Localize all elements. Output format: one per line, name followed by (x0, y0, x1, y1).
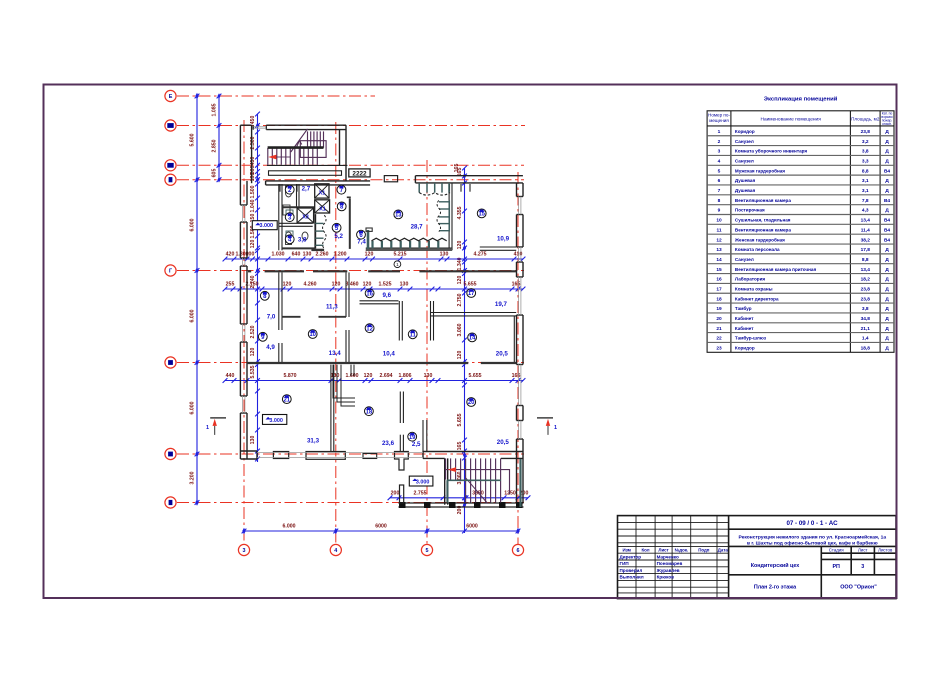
svg-text:Лист: Лист (658, 547, 669, 552)
svg-text:Д: Д (885, 306, 889, 312)
svg-text:10: 10 (309, 332, 316, 338)
svg-text:14: 14 (469, 336, 476, 342)
svg-text:Д: Д (885, 316, 889, 322)
svg-text:в г. Шахты под офисно-бытовой: в г. Шахты под офисно-бытовой цех, кафе … (747, 540, 878, 547)
svg-text:опасн.: опасн. (882, 122, 892, 126)
svg-text:120: 120 (364, 373, 373, 379)
svg-text:130: 130 (440, 252, 449, 258)
svg-text:3: 3 (718, 149, 721, 155)
svg-text:18: 18 (716, 296, 722, 302)
svg-text:165: 165 (454, 164, 460, 173)
svg-text:1.525: 1.525 (379, 282, 392, 288)
svg-text:23: 23 (716, 346, 722, 352)
svg-text:34,8: 34,8 (861, 316, 871, 322)
svg-text:Кол: Кол (641, 547, 649, 552)
svg-text:Д: Д (885, 129, 889, 135)
svg-text:20: 20 (468, 400, 475, 406)
svg-text:21: 21 (283, 397, 290, 403)
svg-text:Лаборатория: Лаборатория (735, 276, 766, 282)
svg-text:38,2: 38,2 (861, 237, 871, 243)
svg-text:1.200: 1.200 (334, 252, 347, 258)
svg-text:2.755: 2.755 (414, 491, 427, 497)
svg-text:1.040: 1.040 (250, 199, 256, 212)
svg-text:130: 130 (424, 373, 433, 379)
svg-text:Д: Д (885, 159, 889, 165)
svg-text:Д: Д (885, 267, 889, 273)
svg-text:200: 200 (391, 491, 400, 497)
svg-text:5.215: 5.215 (394, 252, 407, 258)
svg-text:Д: Д (885, 178, 889, 184)
svg-text:Д: Д (885, 326, 889, 332)
svg-text:120: 120 (363, 282, 372, 288)
svg-text:5.535: 5.535 (250, 365, 256, 378)
svg-text:17: 17 (716, 286, 722, 292)
svg-text:В4: В4 (884, 168, 890, 174)
svg-text:20: 20 (716, 316, 722, 322)
svg-text:1.030: 1.030 (272, 252, 285, 258)
svg-text:3.200: 3.200 (190, 471, 196, 484)
svg-text:2,7: 2,7 (302, 186, 311, 193)
svg-text:4.275: 4.275 (474, 252, 487, 258)
svg-text:№док.: №док. (675, 547, 689, 552)
svg-text:Дата: Дата (718, 547, 729, 552)
svg-text:10,9: 10,9 (497, 236, 510, 243)
svg-text:6.000: 6.000 (283, 524, 296, 530)
svg-text:В4: В4 (884, 218, 890, 224)
svg-text:Душевая: Душевая (735, 188, 756, 193)
svg-text:2.750: 2.750 (457, 293, 463, 306)
svg-text:120: 120 (457, 241, 463, 250)
svg-text:5: 5 (426, 548, 429, 554)
svg-text:23,8: 23,8 (861, 129, 871, 135)
svg-text:1: 1 (554, 425, 557, 431)
svg-text:120: 120 (457, 351, 463, 360)
svg-text:3,2: 3,2 (862, 139, 869, 145)
svg-text:07 - 09 / 0 - 1 - АС: 07 - 09 / 0 - 1 - АС (786, 520, 838, 527)
svg-text:Д: Д (885, 346, 889, 352)
svg-text:130: 130 (400, 282, 409, 288)
svg-text:Мужская гардеробная: Мужская гардеробная (735, 167, 785, 173)
svg-text:Г: Г (169, 269, 172, 275)
svg-text:Стадия: Стадия (829, 548, 845, 553)
svg-text:3.460: 3.460 (346, 282, 359, 288)
svg-text:Санузел: Санузел (735, 257, 754, 262)
svg-text:Д: Д (885, 208, 889, 214)
svg-text:2.260: 2.260 (316, 252, 329, 258)
svg-text:Выполнил: Выполнил (620, 575, 644, 580)
svg-text:12: 12 (716, 237, 722, 243)
svg-text:23,6: 23,6 (382, 440, 395, 447)
svg-text:3.060: 3.060 (457, 471, 463, 484)
svg-text:Е: Е (169, 94, 173, 100)
svg-text:Вентиляционная камера приточна: Вентиляционная камера приточная (735, 267, 817, 272)
svg-text:3: 3 (243, 548, 246, 554)
svg-text:Журавлев: Журавлев (656, 568, 680, 573)
svg-text:3,8: 3,8 (862, 149, 869, 155)
svg-text:Вентиляционная камера: Вентиляционная камера (735, 227, 791, 232)
svg-text:6.000: 6.000 (190, 218, 196, 231)
svg-text:6.000: 6.000 (190, 309, 196, 322)
svg-text:17,8: 17,8 (861, 247, 871, 253)
svg-text:13: 13 (395, 213, 402, 219)
svg-text:9,6: 9,6 (382, 292, 391, 299)
svg-text:1: 1 (396, 262, 399, 267)
svg-text:3.000: 3.000 (260, 223, 274, 229)
svg-text:2.520: 2.520 (250, 325, 256, 338)
svg-text:120: 120 (250, 240, 256, 249)
svg-text:7,0: 7,0 (267, 314, 276, 321)
svg-text:Коридор: Коридор (735, 129, 755, 134)
svg-text:Тамбур: Тамбур (735, 305, 752, 311)
svg-text:ГИП: ГИП (620, 561, 629, 566)
svg-text:Х1: Х1 (319, 207, 326, 213)
svg-text:Д: Д (885, 286, 889, 292)
svg-text:3,8: 3,8 (862, 306, 869, 312)
svg-text:6000: 6000 (375, 524, 387, 530)
svg-text:450: 450 (250, 116, 256, 125)
svg-text:РП: РП (832, 564, 840, 570)
svg-text:420: 420 (226, 252, 235, 258)
svg-text:13,4: 13,4 (861, 218, 871, 224)
svg-text:5,2: 5,2 (334, 233, 343, 240)
svg-text:8: 8 (718, 198, 721, 204)
svg-text:17: 17 (468, 291, 475, 297)
svg-text:21,1: 21,1 (861, 326, 871, 332)
svg-text:2222: 2222 (352, 170, 367, 177)
svg-text:165: 165 (512, 373, 521, 379)
svg-text:Листов: Листов (878, 548, 893, 553)
svg-text:Проверил: Проверил (620, 568, 643, 573)
svg-text:Д: Д (885, 149, 889, 155)
svg-text:10,4: 10,4 (383, 351, 396, 358)
svg-text:Душевая: Душевая (735, 178, 756, 183)
svg-text:Комната персонала: Комната персонала (735, 247, 780, 252)
svg-text:5.655: 5.655 (469, 373, 482, 379)
svg-text:4: 4 (334, 548, 337, 554)
svg-text:130: 130 (331, 373, 340, 379)
svg-text:4,3: 4,3 (862, 208, 869, 214)
svg-text:19: 19 (716, 306, 722, 312)
svg-text:3.060: 3.060 (457, 323, 463, 336)
svg-text:3650: 3650 (472, 491, 484, 497)
svg-text:28,7: 28,7 (411, 224, 424, 231)
svg-text:7,8: 7,8 (862, 198, 869, 204)
svg-text:165: 165 (512, 282, 521, 288)
svg-text:Директор: Директор (620, 554, 642, 559)
svg-text:4.260: 4.260 (304, 282, 317, 288)
svg-text:1.806: 1.806 (399, 373, 412, 379)
svg-text:16: 16 (366, 292, 373, 298)
svg-text:Экспликация помещений: Экспликация помещений (764, 96, 838, 103)
svg-text:Пономарев: Пономарев (657, 561, 683, 566)
svg-text:6: 6 (718, 178, 721, 184)
svg-text:3: 3 (861, 564, 864, 570)
svg-text:1.500: 1.500 (250, 185, 256, 198)
svg-text:Комната уборочного инвентаря: Комната уборочного инвентаря (735, 148, 807, 154)
svg-text:6: 6 (517, 548, 520, 554)
svg-text:450: 450 (250, 157, 256, 166)
svg-text:130: 130 (303, 252, 312, 258)
svg-text:Д: Д (885, 336, 889, 342)
svg-text:640: 640 (292, 252, 301, 258)
svg-text:Кабинет: Кабинет (735, 325, 754, 331)
svg-text:16: 16 (716, 277, 722, 283)
svg-text:13: 13 (716, 247, 722, 253)
svg-text:120: 120 (332, 282, 341, 288)
svg-text:2: 2 (718, 139, 721, 145)
svg-text:120: 120 (457, 276, 463, 285)
svg-text:Д: Д (885, 188, 889, 194)
svg-text:3.000: 3.000 (269, 418, 283, 424)
svg-text:Кабинет: Кабинет (735, 315, 754, 321)
svg-text:4: 4 (718, 159, 721, 165)
svg-text:Наименование помещения: Наименование помещения (760, 117, 821, 123)
svg-text:2.500: 2.500 (250, 136, 256, 149)
svg-text:Санузел: Санузел (735, 139, 754, 144)
svg-text:Х3: Х3 (302, 215, 309, 221)
svg-text:19,7: 19,7 (495, 301, 508, 308)
svg-text:7: 7 (718, 188, 721, 194)
svg-text:Номер по-: Номер по- (708, 113, 730, 118)
svg-text:1,4: 1,4 (862, 336, 869, 342)
svg-text:Х1: Х1 (319, 191, 326, 197)
svg-text:Подп: Подп (698, 547, 710, 552)
svg-text:5.655: 5.655 (457, 413, 463, 426)
svg-text:12: 12 (366, 326, 373, 332)
svg-text:18,8: 18,8 (861, 346, 871, 352)
svg-text:Марченко: Марченко (657, 554, 679, 559)
svg-text:165: 165 (457, 442, 463, 451)
svg-text:10: 10 (716, 218, 722, 224)
svg-text:120: 120 (365, 252, 374, 258)
svg-text:3,1: 3,1 (862, 188, 869, 194)
svg-text:6000: 6000 (466, 524, 478, 530)
svg-text:120: 120 (283, 282, 292, 288)
svg-text:11: 11 (410, 333, 417, 339)
svg-text:7,4: 7,4 (357, 239, 366, 246)
svg-text:8,8: 8,8 (862, 168, 869, 174)
svg-text:18: 18 (366, 409, 373, 415)
svg-text:5.870: 5.870 (284, 373, 297, 379)
svg-text:20,5: 20,5 (496, 351, 509, 358)
svg-text:440: 440 (226, 373, 235, 379)
svg-text:2,5: 2,5 (412, 441, 421, 448)
svg-text:11,3: 11,3 (326, 304, 338, 311)
svg-text:180: 180 (250, 173, 256, 182)
svg-text:Постирочная: Постирочная (735, 208, 765, 213)
svg-text:15: 15 (716, 267, 722, 273)
svg-text:4.355: 4.355 (457, 206, 463, 219)
svg-text:Коридор: Коридор (735, 346, 755, 351)
svg-text:ООО "Орион": ООО "Орион" (840, 585, 877, 591)
svg-text:Крюков: Крюков (657, 575, 675, 580)
svg-text:Д: Д (885, 139, 889, 145)
svg-text:Д: Д (885, 277, 889, 283)
svg-text:1.600: 1.600 (346, 373, 359, 379)
svg-text:В4: В4 (884, 227, 890, 233)
svg-text:Санузел: Санузел (735, 159, 754, 164)
svg-text:5.655: 5.655 (464, 282, 477, 288)
svg-text:Кабинет директора: Кабинет директора (735, 295, 779, 301)
svg-text:Д: Д (885, 257, 889, 263)
svg-text:13,4: 13,4 (861, 267, 871, 273)
svg-text:Изм: Изм (622, 547, 630, 552)
svg-text:1.085: 1.085 (212, 103, 218, 116)
svg-text:3,1: 3,1 (862, 178, 869, 184)
svg-text:14: 14 (716, 257, 722, 263)
svg-text:13,4: 13,4 (329, 350, 342, 357)
svg-text:20,5: 20,5 (497, 439, 510, 446)
svg-text:Тамбур-шлюз: Тамбур-шлюз (735, 335, 767, 341)
svg-text:23,8: 23,8 (861, 296, 871, 302)
svg-text:130: 130 (250, 436, 256, 445)
svg-text:6.000: 6.000 (190, 401, 196, 414)
svg-text:11,4: 11,4 (861, 227, 870, 233)
svg-text:21: 21 (716, 326, 722, 332)
svg-text:В4: В4 (884, 198, 890, 204)
svg-text:22: 22 (716, 336, 722, 342)
svg-text:План 2-го этажа: План 2-го этажа (754, 585, 797, 591)
svg-text:11: 11 (716, 227, 721, 233)
svg-text:Лист: Лист (858, 548, 868, 553)
svg-text:19: 19 (409, 435, 416, 441)
svg-text:4,9: 4,9 (266, 344, 275, 351)
svg-text:3.000: 3.000 (416, 479, 430, 485)
svg-text:Д: Д (885, 296, 889, 302)
svg-text:18,2: 18,2 (861, 277, 871, 283)
svg-text:2.850: 2.850 (212, 139, 218, 152)
svg-text:3,8: 3,8 (298, 237, 307, 244)
svg-text:Д: Д (885, 247, 889, 253)
svg-text:31,3: 31,3 (307, 438, 320, 445)
svg-text:2.694: 2.694 (380, 373, 393, 379)
svg-text:1: 1 (718, 129, 721, 135)
svg-text:Сушильная, гладильная: Сушильная, гладильная (735, 218, 791, 223)
svg-text:5.600: 5.600 (190, 133, 196, 146)
svg-text:120: 120 (250, 348, 256, 357)
svg-text:Вентиляционная камера: Вентиляционная камера (735, 198, 791, 203)
svg-text:В4: В4 (884, 237, 890, 243)
svg-text:5: 5 (718, 168, 721, 174)
svg-text:3,3: 3,3 (862, 159, 869, 165)
svg-text:Комната охраны: Комната охраны (735, 286, 773, 291)
svg-text:мещения: мещения (709, 118, 729, 123)
svg-text:Женская гардеробная: Женская гардеробная (734, 236, 785, 242)
svg-text:Площадь, м2: Площадь, м2 (851, 117, 880, 122)
svg-text:23,8: 23,8 (861, 286, 871, 292)
svg-text:8,8: 8,8 (862, 257, 869, 263)
svg-text:Кондитерский цех: Кондитерский цех (751, 562, 800, 569)
svg-text:1: 1 (206, 425, 209, 431)
svg-text:605: 605 (212, 169, 218, 178)
svg-text:Реконструкция нежилого здания: Реконструкция нежилого здания по ул. Кра… (739, 534, 887, 541)
svg-text:9: 9 (718, 208, 721, 214)
svg-text:15: 15 (478, 212, 485, 218)
svg-text:255: 255 (226, 282, 235, 288)
